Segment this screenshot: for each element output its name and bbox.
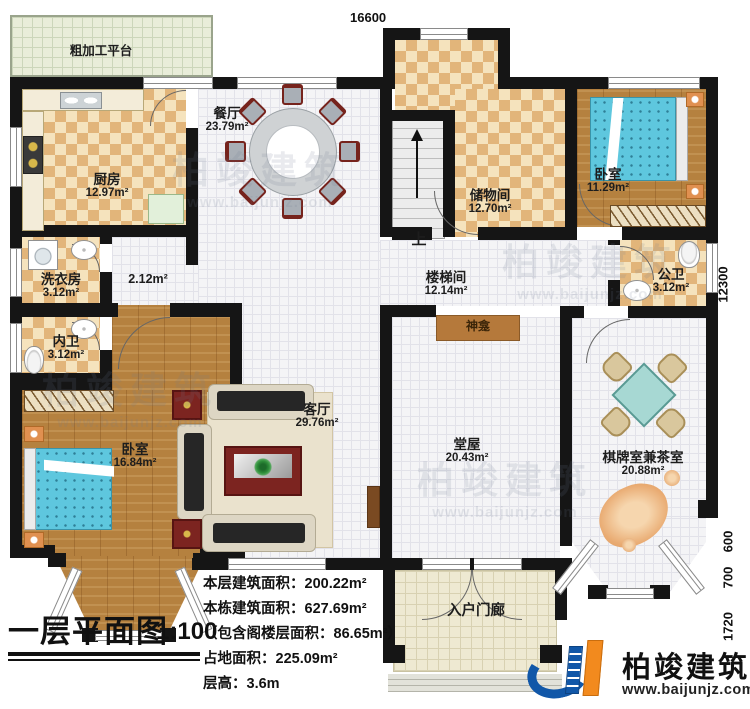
wall [186,128,198,237]
kitchen-window [10,127,22,187]
room-area: 12.14m² [425,285,468,298]
room-label-bedroom-right: 卧室11.29m² [587,167,629,195]
stair-landing-floor [380,240,620,306]
chess-rug-dot [622,538,636,552]
wall [10,187,22,248]
dim-right-height: 12300 [716,255,731,315]
room-name: 洗衣房 [41,272,82,287]
bed-headboard [24,448,36,530]
plant [252,456,274,478]
wall [100,350,112,373]
room-area: 16.84m² [114,457,157,470]
door-mullion [470,558,474,570]
wall [326,558,422,570]
room-area: 3.12m² [653,282,689,295]
room-area: 29.76m² [296,417,339,430]
room-label-living: 客厅29.76m² [296,402,339,430]
brand-website[interactable]: www.baijunjz.com [622,682,750,698]
wall [10,77,143,89]
dining-chair [339,141,360,162]
stat-floor-height: 层高：3.6m [203,672,280,693]
shrine-text: 神龛 [466,320,490,333]
stove [23,136,43,174]
wall [10,77,22,127]
room-name: 粗加工平台 [70,44,133,58]
wall [10,303,112,317]
stairs-up-text: 上 [411,232,426,249]
wall [10,373,112,390]
room-label-bedroom-left: 卧室16.84m² [114,442,157,470]
floor-plan-canvas: 柏竣建筑 www.baijunjz.com 柏竣建筑 www.baijunjz.… [0,0,750,709]
room-area: 12.70m² [469,203,512,216]
wall [698,500,718,518]
room-area: 12.97m² [86,187,129,200]
tv-cabinet [367,486,380,528]
wardrobe [24,390,114,412]
wall [622,227,706,240]
room-area: 20.88m² [603,465,684,478]
wall [383,28,420,40]
bath-public-toilet [678,241,700,268]
title-underline-thick [8,652,200,656]
room-label-platform: 粗加工平台 [70,44,133,58]
stat-building-area: 本栋建筑面积：627.69m² [203,597,367,618]
nightstand [24,532,44,548]
wall [380,305,392,570]
stair-arrow-line [416,140,418,198]
room-label-bath-public: 公卫3.12m² [653,267,689,295]
porch-pillar [383,645,405,663]
dining-table-center [266,125,320,179]
room-name: 客厅 [296,402,339,417]
dining-chair [282,198,303,219]
sofa-cushion [213,523,305,543]
bath-inner-toilet [24,346,44,374]
laundry-sink [71,240,97,260]
room-label-bath-inner: 内卫3.12m² [48,334,84,362]
room-name: 储物间 [469,188,512,203]
room-label-stairwell: 楼梯间12.14m² [425,270,468,298]
sofa-cushion [217,391,305,411]
fridge [148,194,184,224]
bedroom-right-window [608,77,700,89]
room-name: 内卫 [48,334,84,349]
brand-logo [525,638,617,704]
brand-name: 柏竣建筑 [622,644,750,686]
wardrobe [610,205,706,227]
room-label-kitchen: 厨房12.97m² [86,172,129,200]
wall [478,227,565,240]
nightstand [686,92,704,107]
logo-building-orange-icon [583,640,604,696]
room-name: 卧室 [587,167,629,182]
dining-chair [225,141,246,162]
wall [522,558,572,570]
chess-bay-window-bottom [606,588,654,599]
wall [48,553,66,567]
nightstand [686,184,704,199]
wall [112,303,118,317]
room-label-chess: 棋牌室兼茶室20.88m² [603,450,684,478]
storage-window [420,28,468,40]
room-name: 楼梯间 [425,270,468,285]
room-area: 11.29m² [587,182,629,195]
room-label-porch: 入户门廊 [447,603,505,619]
platform-door-opening [143,77,213,89]
wall [10,373,22,545]
washing-machine [28,240,58,270]
wall [706,293,718,508]
room-name: 厨房 [86,172,129,187]
room-name: 入户门廊 [447,603,505,619]
bath-inner-window [10,323,22,373]
wall [498,77,608,89]
dining-chair [282,84,303,105]
page-title: 一层平面图 [8,606,168,651]
stat-land-area: 占地面积：225.09m² [203,647,338,668]
wall [706,77,718,243]
bed [24,448,112,530]
wall [560,306,572,546]
room-area: 23.79m² [206,121,249,134]
sofa [177,424,212,520]
bed-headboard [676,97,688,181]
wall [186,237,198,265]
laundry-window [10,248,22,297]
room-name: 堂屋 [446,437,489,452]
room-label-corridor: 2.12m² [128,272,168,286]
nightstand [24,426,44,442]
stairs-up-label: 上 [411,232,426,249]
room-label-hall: 堂屋20.43m² [446,437,489,465]
wall [565,227,577,240]
wall [608,240,620,245]
kitchen-sink [60,92,102,109]
sofa-cushion [184,433,204,511]
wall [213,77,237,89]
end-table [172,519,202,549]
sofa [202,514,316,552]
shrine-label: 神龛 [466,320,490,333]
dim-top-width: 16600 [350,10,386,25]
room-name: 公卫 [653,267,689,282]
room-area: 20.43m² [446,452,489,465]
wall [100,272,112,305]
stat-floor-area: 本层建筑面积：200.22m² [203,572,367,593]
room-area: 2.12m² [128,272,168,286]
stair-arrow-head [411,129,423,141]
wall [588,585,608,599]
wall [388,110,455,121]
room-label-storage: 储物间12.70m² [469,188,512,216]
room-label-dining: 餐厅23.79m² [206,106,249,134]
title-underline-thin [8,659,200,661]
bath-public-sink [623,280,651,301]
wall [608,280,620,306]
wall [100,237,112,244]
stat-attic-area: （包含阁楼层面积：86.65m²） [203,622,402,643]
room-name: 棋牌室兼茶室 [603,450,684,465]
end-table [172,390,202,420]
wall [628,306,706,318]
room-area: 3.12m² [48,349,84,362]
wall [565,77,577,240]
living-window [228,558,326,570]
room-label-laundry: 洗衣房3.12m² [41,272,82,300]
room-name: 餐厅 [206,106,249,121]
room-name: 卧室 [114,442,157,457]
room-area: 3.12m² [41,287,82,300]
